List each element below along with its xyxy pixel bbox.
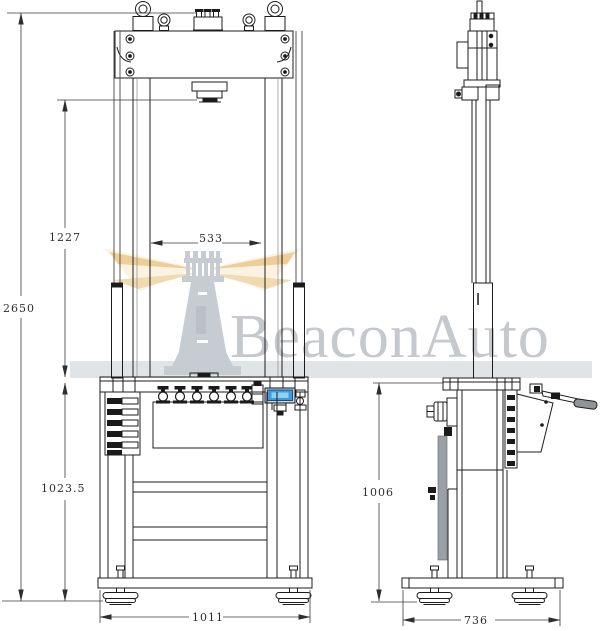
rod-sleeve-left-cap [112, 283, 123, 287]
svg-text:2650: 2650 [3, 302, 35, 315]
top-fitting [193, 10, 223, 31]
dimension-total-height: 2650 [3, 13, 35, 601]
dimension-base-depth-side: 736 [403, 614, 560, 627]
guide-rods [114, 31, 302, 283]
svg-text:1006: 1006 [362, 486, 394, 499]
machine-drawing: BeaconAuto [0, 0, 606, 631]
drawer-stack [105, 392, 140, 455]
column-top-left [133, 17, 153, 31]
side-body [457, 390, 517, 578]
technical-drawing-page: BeaconAuto [0, 0, 606, 631]
column-top-right [265, 17, 285, 31]
leveling-foot-icon [512, 566, 547, 605]
crossbeam [115, 31, 293, 78]
rod-sleeve-right-cap [294, 283, 305, 287]
control-panel-side [517, 394, 553, 452]
leveling-foot-icon [417, 566, 452, 605]
hand-lever [530, 384, 597, 410]
base-front [98, 578, 312, 588]
svg-text:1227: 1227 [49, 231, 81, 244]
top-assembly [455, 1, 500, 100]
dimension-table-height-side: 1006 [362, 383, 394, 601]
dimension-daylight-opening: 1227 [49, 100, 81, 377]
control-display [265, 388, 295, 415]
front-panel [153, 402, 263, 448]
valve-row [156, 382, 263, 404]
eyebolt-icon [136, 2, 283, 31]
dimension-table-height-front: 1023.5 [41, 383, 86, 601]
svg-text:533: 533 [199, 232, 223, 245]
base-side [402, 578, 563, 588]
svg-text:1011: 1011 [192, 611, 224, 624]
dimension-base-width-front: 1011 [100, 611, 310, 624]
brand-watermark: BeaconAuto [70, 248, 592, 378]
side-motor [427, 398, 457, 560]
svg-text:1023.5: 1023.5 [41, 482, 86, 495]
press-ram [192, 82, 227, 102]
side-table [443, 378, 520, 390]
svg-text:736: 736 [464, 614, 488, 627]
dimension-clear-width: 533 [151, 232, 261, 245]
leveling-foot-icon [276, 566, 311, 605]
